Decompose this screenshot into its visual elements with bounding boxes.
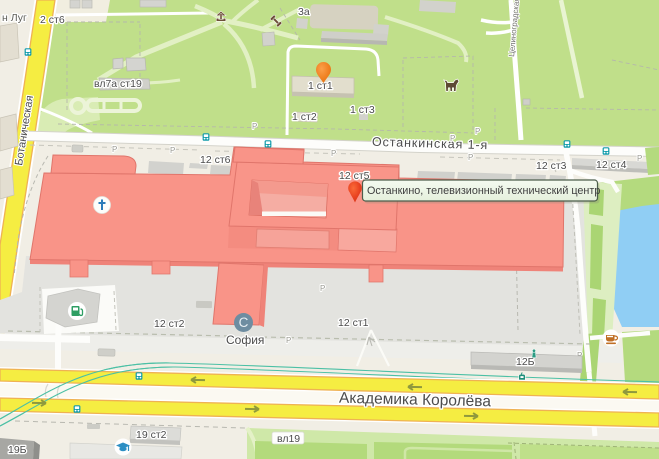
svg-text:н Луг: н Луг (2, 12, 27, 24)
svg-text:12 ст4: 12 ст4 (596, 159, 627, 171)
svg-text:C: C (239, 315, 249, 330)
svg-text:вл19: вл19 (277, 433, 300, 445)
svg-text:P: P (450, 134, 455, 143)
svg-text:12 ст1: 12 ст1 (338, 317, 369, 329)
svg-text:12 ст2: 12 ст2 (154, 318, 185, 330)
svg-text:3а: 3а (298, 6, 310, 18)
svg-text:P: P (112, 145, 117, 154)
svg-text:P: P (331, 149, 336, 158)
svg-text:1 ст1: 1 ст1 (308, 80, 333, 92)
svg-text:вл7а ст19: вл7а ст19 (94, 78, 142, 90)
svg-text:София: София (226, 333, 264, 347)
svg-text:12 ст6: 12 ст6 (200, 154, 231, 166)
svg-text:1 ст2: 1 ст2 (292, 111, 317, 123)
svg-text:P: P (252, 122, 257, 131)
svg-text:P: P (286, 336, 291, 345)
svg-text:2 ст6: 2 ст6 (40, 14, 65, 26)
svg-text:P: P (468, 153, 473, 162)
svg-text:P: P (475, 127, 480, 136)
svg-text:1 ст3: 1 ст3 (350, 104, 375, 116)
svg-text:12 ст3: 12 ст3 (536, 160, 567, 172)
svg-text:P: P (320, 284, 325, 293)
svg-text:P: P (170, 146, 175, 155)
svg-text:19Б: 19Б (8, 444, 27, 456)
svg-text:Останкино, телевизионный техни: Останкино, телевизионный технический цен… (367, 185, 600, 197)
svg-text:19 ст2: 19 ст2 (136, 429, 167, 441)
